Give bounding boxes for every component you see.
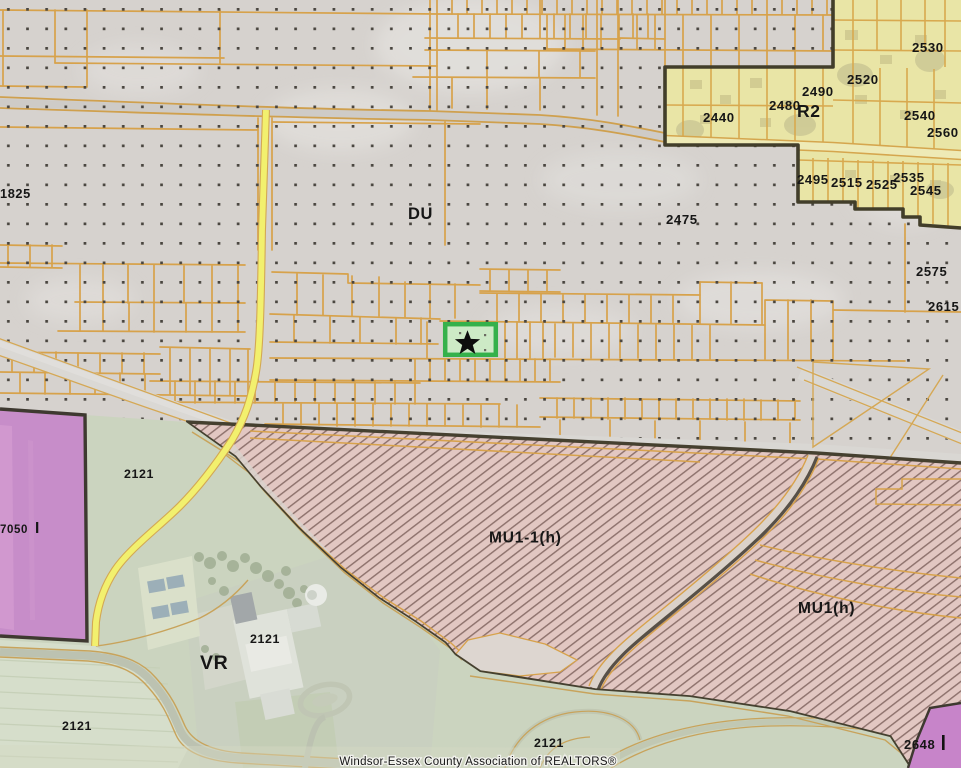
svg-text:2545: 2545 <box>910 183 942 198</box>
svg-text:2560: 2560 <box>927 125 959 140</box>
svg-text:2648: 2648 <box>904 737 935 752</box>
svg-text:2495: 2495 <box>797 172 829 187</box>
svg-text:2121: 2121 <box>62 719 92 733</box>
svg-text:Windsor-Essex County Associati: Windsor-Essex County Association of REAL… <box>339 756 616 768</box>
svg-text:2480: 2480 <box>769 98 801 113</box>
svg-text:2440: 2440 <box>703 110 735 125</box>
svg-text:I: I <box>35 520 40 537</box>
svg-text:2121: 2121 <box>534 736 564 750</box>
svg-text:2520: 2520 <box>847 72 879 87</box>
svg-text:2615: 2615 <box>928 299 959 314</box>
svg-text:2530: 2530 <box>912 40 944 55</box>
svg-text:2121: 2121 <box>124 467 154 481</box>
svg-text:MU1-1(h): MU1-1(h) <box>489 530 562 547</box>
svg-text:2575: 2575 <box>916 264 947 279</box>
svg-text:1825: 1825 <box>0 186 31 201</box>
svg-text:2490: 2490 <box>802 84 834 99</box>
svg-text:2515: 2515 <box>831 175 863 190</box>
svg-text:MU1(h): MU1(h) <box>798 600 855 617</box>
svg-text:2121: 2121 <box>250 632 280 646</box>
svg-text:2475: 2475 <box>666 212 698 227</box>
svg-text:DU: DU <box>408 205 433 223</box>
svg-text:2540: 2540 <box>904 108 936 123</box>
svg-text:7050: 7050 <box>0 524 28 536</box>
svg-text:VR: VR <box>200 652 228 674</box>
